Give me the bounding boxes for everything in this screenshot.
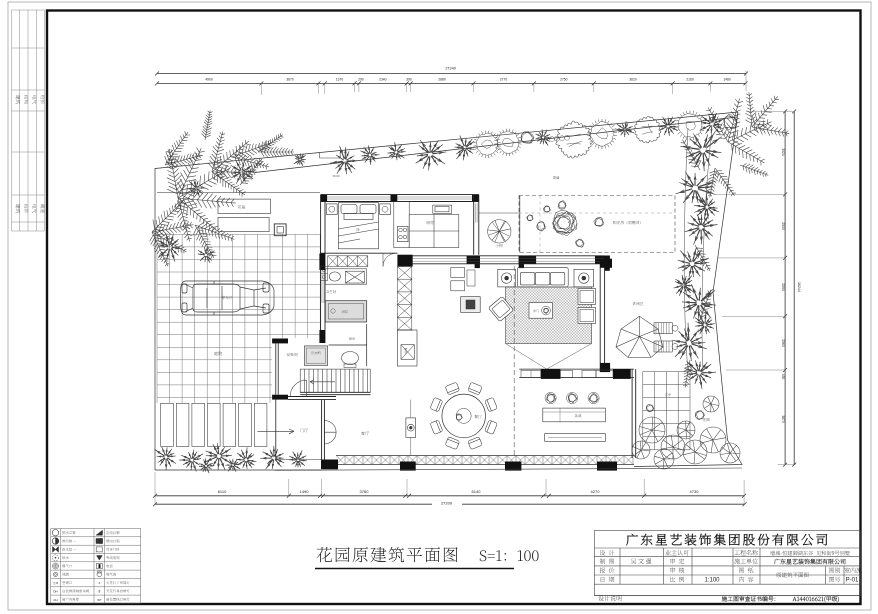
svg-text:WT: WT [97,598,102,602]
svg-text:2750: 2750 [560,77,568,81]
svg-text:27240: 27240 [445,67,456,71]
svg-text:1490: 1490 [300,489,310,494]
svg-text:3760: 3760 [360,489,370,494]
svg-text:390: 390 [406,77,412,81]
svg-text:1480: 1480 [723,77,731,81]
svg-text:2560: 2560 [781,339,785,347]
svg-text:2500: 2500 [781,222,785,230]
svg-text:4900: 4900 [205,77,213,81]
svg-text:6110: 6110 [218,489,227,494]
svg-text:1:100: 1:100 [704,578,720,584]
svg-text:±0.00: ±0.00 [333,174,340,178]
svg-text:450: 450 [781,374,785,380]
svg-text:4730: 4730 [690,489,700,494]
svg-text:6140: 6140 [472,489,482,494]
svg-text:2340: 2340 [379,77,387,81]
svg-text:4270: 4270 [591,489,601,494]
svg-text:16244: 16244 [797,282,801,292]
svg-text:2160: 2160 [686,77,694,81]
svg-text:CH: CH [53,598,57,602]
svg-text:P-01: P-01 [846,578,859,584]
svg-text:3670: 3670 [286,77,294,81]
svg-text:3620: 3620 [629,77,637,81]
svg-text:3024: 3024 [781,148,785,156]
svg-text:1370: 1370 [336,77,344,81]
svg-text:3870: 3870 [781,415,785,423]
svg-text:2770: 2770 [500,77,508,81]
svg-text:2590: 2590 [781,283,785,291]
svg-text:290: 290 [358,77,364,81]
svg-text:8: 8 [99,590,101,594]
svg-text:2880: 2880 [438,77,446,81]
svg-text:DH: DH [53,590,57,594]
svg-text:27200: 27200 [441,501,453,506]
